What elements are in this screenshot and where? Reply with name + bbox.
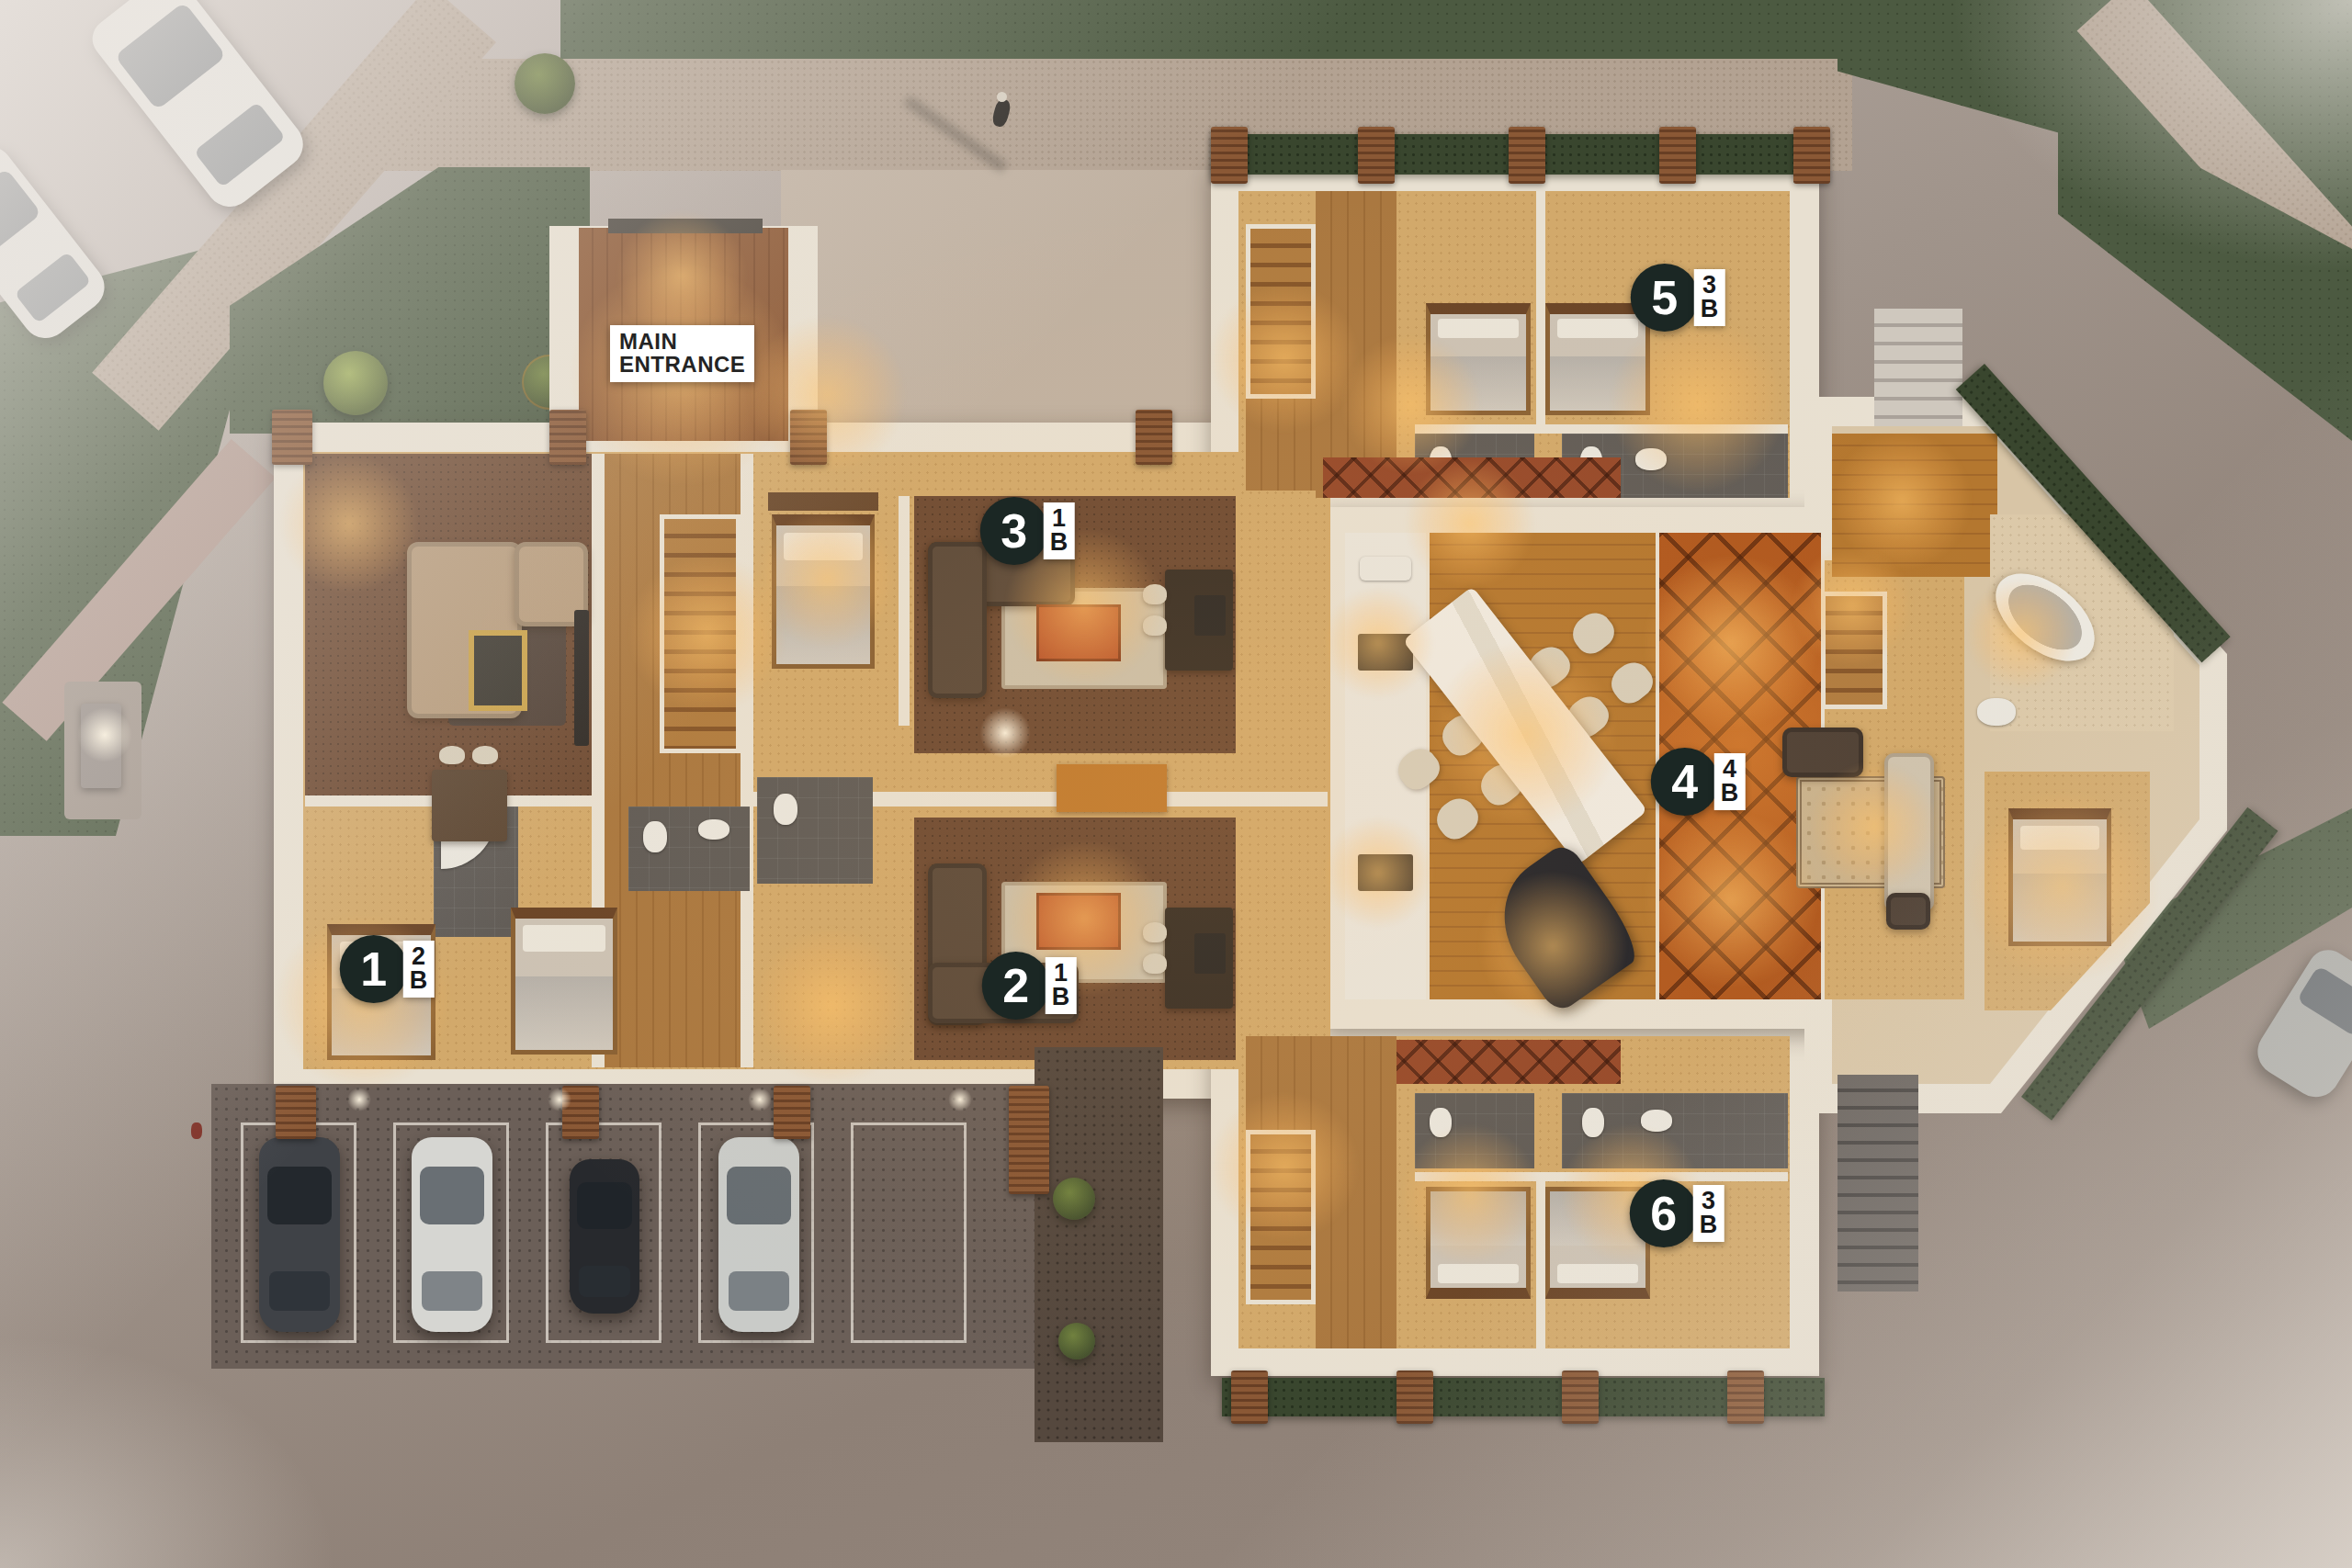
chair	[1143, 584, 1167, 604]
unit-3-marker[interactable]: 3 1 B	[980, 497, 1075, 565]
staircase-unit6	[1246, 1130, 1316, 1304]
staircase-left-wing	[660, 514, 741, 753]
unit-3-number: 3	[980, 497, 1048, 565]
unit-1-number: 1	[340, 935, 408, 1003]
wall	[1415, 424, 1788, 434]
sink	[1635, 448, 1667, 470]
sofa	[1782, 728, 1863, 777]
parked-car-dark	[259, 1137, 340, 1332]
figure-red	[191, 1122, 202, 1139]
unit-1-beds-tag: 2 B	[403, 941, 435, 998]
tv-console	[574, 610, 589, 746]
beds-count: 3	[1702, 1190, 1715, 1213]
timber-post	[774, 1086, 810, 1139]
unit-2-beds-tag: 1 B	[1046, 957, 1077, 1014]
unit-5-beds-tag: 3 B	[1694, 269, 1725, 326]
bed	[1426, 303, 1531, 415]
car-windshield	[267, 1167, 332, 1225]
unit-5-marker[interactable]: 5 3 B	[1631, 264, 1725, 332]
planter-bush	[1053, 1178, 1095, 1220]
timber-post	[790, 410, 827, 465]
chair	[1143, 953, 1167, 974]
beds-suffix: B	[1701, 298, 1719, 321]
parked-car-white	[412, 1137, 492, 1332]
bathroom	[757, 777, 873, 884]
unit-6-marker[interactable]: 6 3 B	[1630, 1179, 1724, 1247]
timber-post	[1358, 127, 1395, 184]
aerial-floorplan-scene: MAIN ENTRANCE 1 2 B 2 1 B 3 1 B 4 4 B 5 …	[0, 0, 2352, 1568]
bed	[511, 908, 617, 1055]
grass-top-band	[560, 0, 1847, 64]
timber-post	[1562, 1371, 1599, 1424]
planter-bush	[1058, 1323, 1095, 1359]
wall	[1536, 1181, 1545, 1348]
timber-post	[1793, 127, 1830, 184]
timber-post	[1009, 1086, 1049, 1194]
car-rear-window	[14, 252, 91, 324]
dark-walkway	[1035, 1047, 1163, 1442]
car-rear-window	[729, 1271, 788, 1310]
sink	[1977, 698, 2016, 726]
unit-4-number: 4	[1651, 748, 1719, 816]
exterior-stairs-bottom	[1837, 1075, 1918, 1292]
beds-count: 2	[412, 945, 425, 969]
person-head	[997, 92, 1007, 102]
bush	[323, 351, 388, 415]
main-entrance-line2: ENTRANCE	[619, 354, 745, 377]
sink	[1641, 1110, 1672, 1132]
unit-6-beds-tag: 3 B	[1693, 1185, 1724, 1242]
wardrobe	[768, 492, 878, 511]
exterior-stairs-top	[1874, 309, 1962, 426]
courtyard-paving	[781, 170, 1213, 427]
car-windshield	[577, 1182, 633, 1228]
armchair	[1886, 893, 1930, 930]
coffee-table-orange	[1036, 893, 1121, 950]
chair	[472, 746, 498, 764]
tower-stairs	[1821, 592, 1887, 709]
tv	[1194, 933, 1226, 974]
sofa	[928, 542, 987, 698]
bed	[772, 514, 875, 669]
timber-post	[562, 1086, 599, 1139]
timber-post	[276, 1086, 316, 1139]
unit-3-beds-tag: 1 B	[1044, 502, 1075, 559]
beds-count: 3	[1702, 274, 1716, 298]
wall	[899, 496, 910, 726]
parked-car-silver	[718, 1137, 799, 1332]
unit-4-beds-tag: 4 B	[1714, 753, 1746, 810]
kitchen-sink	[1360, 557, 1411, 581]
wall	[741, 454, 753, 1067]
timber-post	[272, 410, 312, 465]
car-rear-window	[269, 1271, 329, 1310]
bush	[514, 53, 575, 114]
beds-count: 1	[1054, 962, 1068, 986]
toilet	[1430, 1108, 1452, 1137]
car-windshield	[114, 1, 226, 109]
timber-post	[549, 410, 586, 465]
car-windshield	[2296, 964, 2352, 1037]
timber-post	[1659, 127, 1696, 184]
staircase-unit5	[1246, 224, 1316, 399]
wall	[1536, 191, 1545, 432]
sofa	[1884, 753, 1934, 911]
timber-post	[1727, 1371, 1764, 1424]
desk	[432, 770, 507, 841]
wall	[1415, 1172, 1788, 1181]
unit5-hall	[1316, 191, 1396, 498]
stair-landing	[1246, 1036, 1316, 1130]
tower-wood-room	[1832, 434, 1997, 577]
timber-post	[1136, 410, 1172, 465]
unit-2-marker[interactable]: 2 1 B	[982, 952, 1077, 1020]
timber-post	[1509, 127, 1545, 184]
garden-monument	[81, 704, 121, 788]
bed	[1426, 1187, 1531, 1299]
toilet	[774, 794, 797, 825]
parked-car-black	[570, 1159, 639, 1314]
coffee-table-orange	[1036, 604, 1121, 661]
sideboard	[1057, 764, 1167, 812]
beds-suffix: B	[1721, 782, 1739, 806]
stair-landing	[1246, 399, 1316, 491]
tv	[1194, 595, 1226, 636]
car-windshield	[420, 1167, 484, 1225]
car-windshield	[727, 1167, 791, 1225]
coffee-table-gold	[469, 630, 527, 711]
cooktop	[1358, 854, 1413, 891]
car-rear-window	[579, 1266, 630, 1297]
beds-count: 4	[1723, 758, 1736, 782]
toilet	[1582, 1108, 1604, 1137]
parking-stall	[851, 1122, 967, 1343]
parked-car-right-edge	[2249, 942, 2352, 1106]
beds-suffix: B	[1052, 986, 1070, 1010]
entrance-doormat	[608, 219, 763, 233]
toilet	[643, 821, 667, 852]
beds-suffix: B	[1700, 1213, 1718, 1237]
unit6-hall	[1316, 1036, 1396, 1348]
unit-1-marker[interactable]: 1 2 B	[340, 935, 435, 1003]
beds-suffix: B	[1050, 531, 1069, 555]
chair	[1143, 922, 1167, 942]
unit-5-number: 5	[1631, 264, 1699, 332]
beds-count: 1	[1052, 507, 1066, 531]
bed	[2008, 808, 2111, 946]
beds-suffix: B	[410, 969, 428, 993]
unit-2-number: 2	[982, 952, 1050, 1020]
unit5-hall-carpet	[1323, 457, 1621, 498]
unit-4-marker[interactable]: 4 4 B	[1651, 748, 1746, 816]
car-rear-window	[193, 101, 286, 187]
timber-post	[1211, 127, 1248, 184]
sink	[698, 819, 729, 840]
timber-post	[1396, 1371, 1433, 1424]
timber-post	[1231, 1371, 1268, 1424]
chair	[439, 746, 465, 764]
car-rear-window	[422, 1271, 481, 1310]
unit-6-number: 6	[1630, 1179, 1698, 1247]
main-entrance-label: MAIN ENTRANCE	[610, 325, 754, 382]
main-entrance-line1: MAIN	[619, 331, 745, 354]
chair	[1143, 615, 1167, 636]
